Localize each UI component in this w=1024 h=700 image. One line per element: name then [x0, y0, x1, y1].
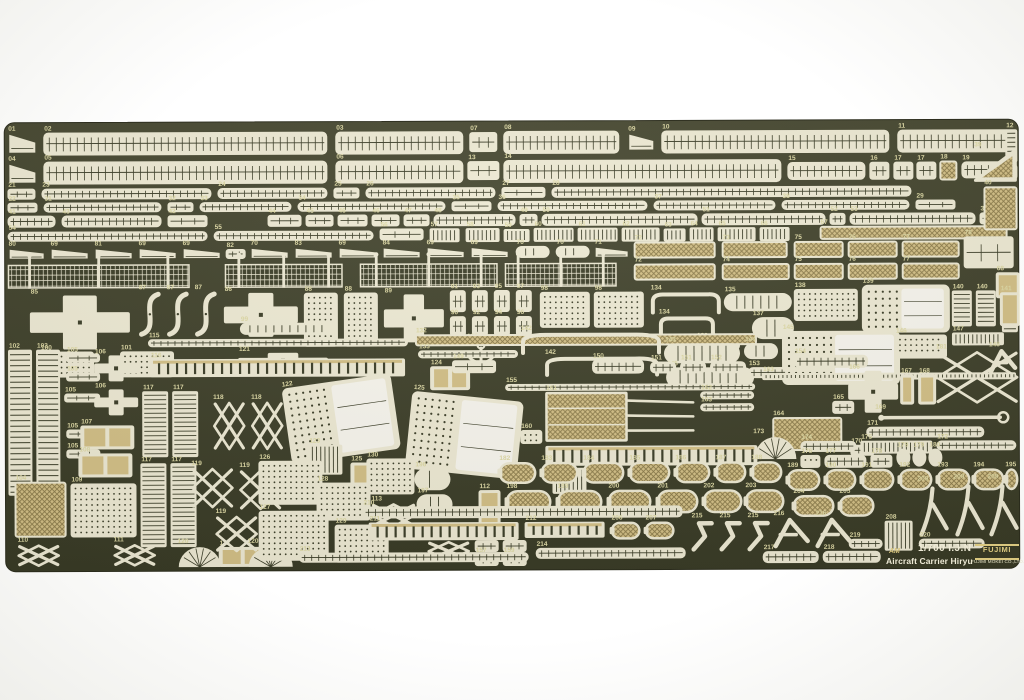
sheen-overlay — [4, 119, 1020, 572]
photo-etch-sheet-photo: 0102030708091011120405061314151617171819… — [0, 0, 1024, 700]
scale-text: 1/700 I.J.N — [918, 544, 971, 554]
kit-name: Aircraft Carrier Hiryu — [886, 557, 973, 566]
material-mark: AM — [889, 548, 900, 555]
sheet: 0102030708091011120405061314151617171819… — [4, 119, 1021, 572]
photo-etch-fret: 0102030708091011120405061314151617171819… — [0, 0, 1024, 700]
brand-text: FUJIMI MOKEI CO.,LTD. — [971, 560, 1024, 565]
fujimi-logo: FUJIMI — [975, 544, 1019, 560]
